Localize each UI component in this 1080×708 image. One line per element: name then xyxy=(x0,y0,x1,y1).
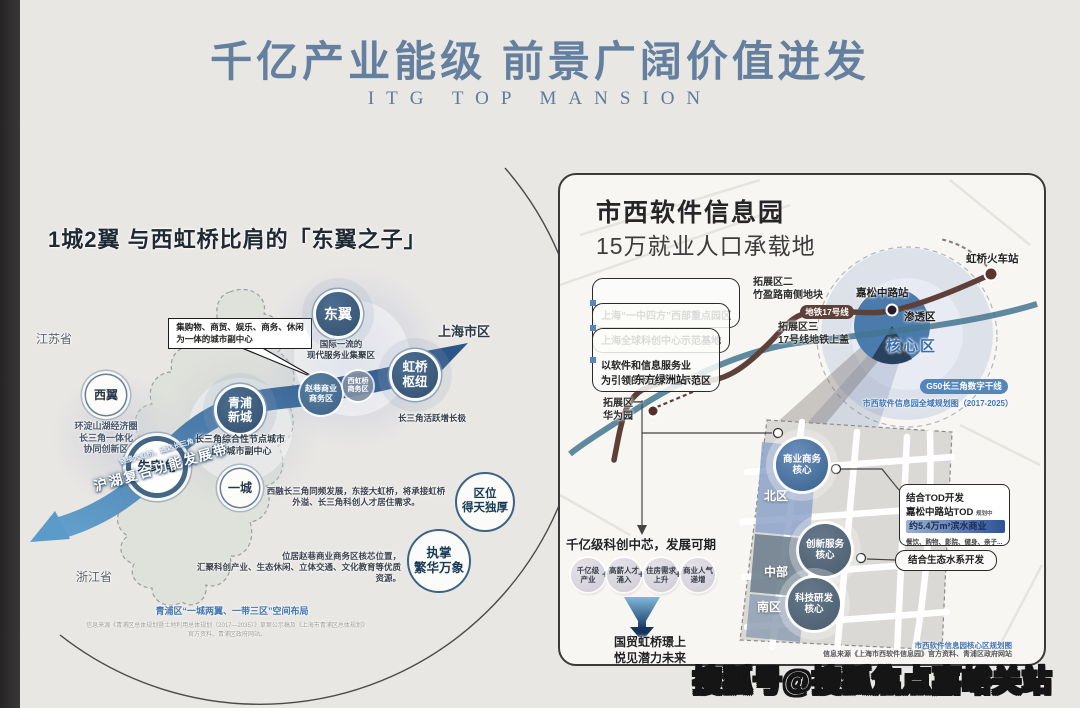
software-park-panel: 市西软件信息园 15万就业人口承载地 上海“一中四方”西部重点园区 上海全球科创… xyxy=(558,173,1046,666)
node-west-wing: 西翼 xyxy=(86,375,126,415)
left-caption: 青浦区“一城两翼、一带三区”空间布局 xyxy=(132,606,332,618)
core-zone-label: 核心区 xyxy=(886,337,937,357)
bullet-square-icon xyxy=(590,357,596,363)
east-wing-desc: 国际一流的 现代服务业集聚区 xyxy=(281,339,401,361)
factor-talent: 高薪人才 涌入 xyxy=(607,558,641,592)
expansion-zone-2: 拓展区二 竹盈路南侧地块 xyxy=(753,276,823,302)
dongfang-station-label: 东方绿洲站 xyxy=(634,374,687,388)
station-dot-jiasong xyxy=(887,305,898,316)
badge-prosperity: 执掌 繁华万象 xyxy=(407,529,471,593)
expansion-zone-3: 拓展区三 17号线地铁上盖 xyxy=(778,321,849,347)
g50-badge: G50长三角数字干线 xyxy=(920,379,1008,394)
hongqiao-desc: 长三角活跃增长极 xyxy=(367,413,497,424)
core-innovation-circle: 创新服务 核心 xyxy=(799,524,851,576)
plan-caption: 市西软件信息园全域规划图（2017-2025） xyxy=(855,399,1013,409)
node-east-wing: 东翼 xyxy=(316,292,360,336)
node-west-hongqiao: 西虹桥 商务区 xyxy=(343,371,373,401)
watermark: 搜狐号@搜狐焦点嘉峪关站 xyxy=(693,658,1052,700)
tod-title: 结合TOD开发 xyxy=(906,490,1003,504)
factor-industry: 千亿级 产业 xyxy=(571,558,605,592)
badge-location-advantage: 区位 得天独厚 xyxy=(455,472,515,532)
node-zhaoxiang: 赵巷商业 商务区 xyxy=(300,373,342,415)
bottom-headline: 千亿级科创中芯，发展可期 xyxy=(565,537,717,553)
left-title: 1城2翼 与西虹桥比肩的「东翼之子」 xyxy=(48,226,427,255)
infographic-root: 千亿产业能级 前景广阔价值迸发 ITG TOP MANSION 1城2翼 与西虹… xyxy=(0,0,1080,708)
eco-callout: 结合生态水系开发 xyxy=(895,550,997,571)
penetration-zone-label: 渗透区 xyxy=(904,311,936,325)
district-mid-label: 中部 xyxy=(764,563,788,580)
station-dot-huawei xyxy=(648,406,659,417)
district-south-label: 南区 xyxy=(757,598,781,615)
district-north-label: 北区 xyxy=(764,487,788,504)
tod-highlight-pill: 约5.4万m²滨水商业 xyxy=(906,520,1005,533)
conclusion-text: 国贸虹桥璟上 悦见潜力未来 xyxy=(598,635,702,666)
factor-housing: 住房需求 上升 xyxy=(644,558,678,592)
left-source: 信息来源《青浦区总体规划暨土地利用总体规划（2017—2035）》草案公示稿及《… xyxy=(67,622,387,640)
tod-note: 规划中 xyxy=(976,511,993,517)
factor-commerce: 商业人气 递增 xyxy=(681,558,715,592)
core-tech-circle: 科技研发 核心 xyxy=(788,578,840,630)
jiasong-station-label: 嘉松中路站 xyxy=(856,287,909,301)
tod-desc: 餐饮、购物、影院、健身、亲子... xyxy=(906,536,1003,546)
panel-subtitle: 15万就业人口承载地 xyxy=(596,227,816,261)
metro-17-badge: 地铁17号线 xyxy=(800,305,854,319)
core-business-circle: 商业商务 核心 xyxy=(776,439,828,491)
panel-title: 市西软件信息园 xyxy=(596,193,785,229)
province-jiangsu: 江苏省 xyxy=(36,332,72,348)
tod-callout-box: 结合TOD开发 嘉松中路站TOD 规划中 约5.4万m²滨水商业 餐饮、购物、影… xyxy=(899,484,1010,546)
hongqiao-rail-station-label: 虹桥火车站 xyxy=(966,253,1019,267)
left-desc-east: 西融长三角同频发展，东接大虹桥，将承接虹桥 外溢、长三角科创人才居住需求。 xyxy=(250,486,462,508)
left-desc-zhaoxiang: 位居赵巷商业商务区核芯位置， 汇聚科创产业、生态休闲、立体交通、文化教育等优质资… xyxy=(195,551,401,584)
province-zhejiang: 浙江省 xyxy=(76,570,112,586)
shanghai-city-label: 上海市区 xyxy=(438,324,490,341)
tod-line2: 嘉松中路站TOD xyxy=(906,507,973,518)
expansion-zone-1: 拓展区一 华为园 xyxy=(603,397,643,423)
station-dot-hongqiao-rail xyxy=(985,268,998,281)
node-hongqiao-hub: 虹桥 枢纽 xyxy=(392,352,438,398)
